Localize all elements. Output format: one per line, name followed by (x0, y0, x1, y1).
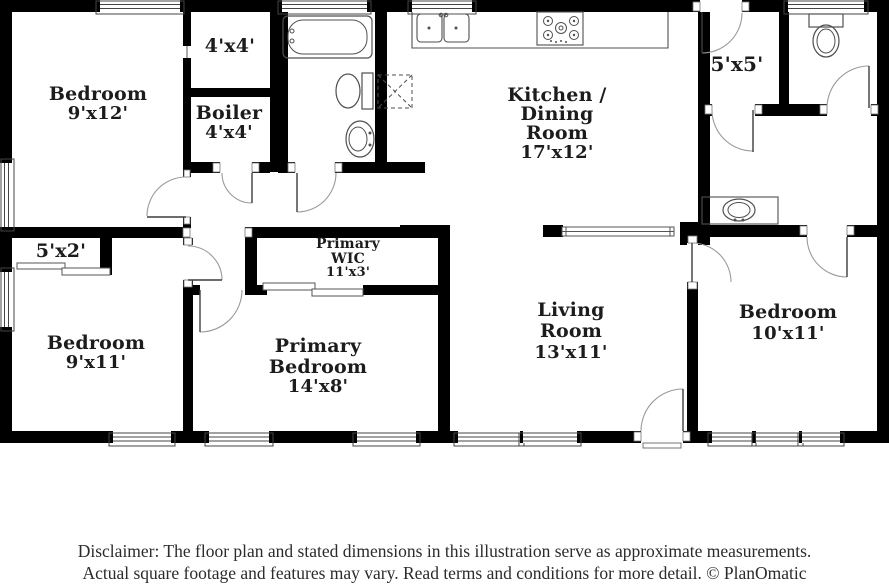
vanity-sink-icon (728, 203, 750, 218)
pedestal-sink-icon (349, 127, 367, 151)
room-dims: 9'x11' (47, 353, 145, 373)
bathroom-door-arc (297, 173, 336, 212)
room-label-bedroom-9x11: Bedroom 9'x11' (47, 333, 145, 373)
sink-tap-icon (369, 144, 372, 147)
room-label-boiler: Boiler 4'x4' (196, 103, 262, 143)
disclaimer-line-1: Disclaimer: The floor plan and stated di… (0, 540, 889, 562)
stove-burner-icon (573, 20, 575, 22)
room-label-closet-4x4: 4'x4' (205, 36, 255, 56)
stove-burner-icon (556, 23, 567, 34)
wall (779, 12, 789, 104)
front-door-arc (641, 389, 683, 431)
window (0, 163, 12, 227)
door-jamb (683, 432, 690, 441)
door-opening (295, 162, 335, 173)
stove-knob-icon (565, 41, 567, 43)
wall (698, 12, 710, 237)
sink-tap-icon (369, 132, 372, 135)
window (282, 0, 367, 12)
room-dims: 5'x5' (710, 54, 763, 74)
toilet-bowl-icon (336, 74, 360, 108)
wall (363, 285, 438, 295)
bedroom-9x11-door-arc (188, 246, 222, 280)
door-jamb (184, 280, 192, 287)
door-jamb (184, 238, 192, 245)
toilet-bowl-icon (817, 29, 835, 53)
room-name: Boiler (196, 103, 262, 123)
door-jamb (288, 163, 295, 172)
wall (375, 12, 387, 173)
door-jamb (871, 105, 878, 114)
vanity-counter-icon (702, 197, 778, 224)
disclaimer-line-2: Actual square footage and features may v… (0, 562, 889, 584)
sliding-door (312, 289, 363, 296)
door-opening (827, 104, 871, 116)
bathroom-2-door-arc (712, 110, 753, 151)
room-dims: 17'x12' (507, 143, 606, 162)
wall (270, 12, 288, 172)
wall (543, 225, 563, 237)
room-label-bedroom-9x12: Bedroom 9'x12' (49, 84, 147, 124)
sink-tap-icon (734, 219, 737, 222)
wall (438, 225, 450, 433)
door-jamb (742, 2, 749, 11)
door-jamb (847, 226, 854, 235)
door-opening (183, 245, 193, 280)
room-name: Room (534, 321, 607, 342)
toilet-room-door-arc (827, 66, 869, 108)
door-opening (183, 177, 191, 217)
room-label-primary-bedroom: Primary Bedroom 14'x8' (269, 336, 367, 398)
disclaimer: Disclaimer: The floor plan and stated di… (0, 540, 889, 584)
door-jamb (335, 163, 342, 172)
bathtub-icon (283, 16, 372, 58)
stove-burner-icon (573, 34, 575, 36)
room-name: Bedroom (49, 84, 147, 104)
kitchen-counter-icon (412, 12, 668, 48)
room-name: WIC (316, 252, 380, 267)
room-name: Primary (269, 336, 367, 357)
window (412, 0, 472, 12)
floor-plan-page: Bedroom 9'x12' 4'x4' Boiler 4'x4' Kitche… (0, 0, 889, 584)
window (788, 0, 864, 12)
bathtub-faucet-icon (290, 29, 294, 33)
sink-drain-icon (455, 27, 458, 30)
room-label-primary-wic: Primary WIC 11'x3' (316, 237, 380, 281)
room-dims: 10'x11' (739, 323, 837, 344)
door-jamb (634, 432, 641, 441)
door-jamb (820, 105, 827, 114)
room-label-kitchen-dining: Kitchen / Dining Room 17'x12' (507, 86, 606, 162)
window (0, 272, 12, 327)
bathtub-faucet-icon (290, 39, 294, 43)
door-jamb (252, 163, 259, 172)
stove-burner-icon (559, 26, 563, 30)
toilet-tank-icon (362, 73, 373, 109)
door-jamb (183, 228, 190, 237)
door-jamb (755, 105, 762, 114)
room-dims: 4'x4' (196, 123, 262, 143)
room-dims: 11'x3' (316, 266, 380, 281)
door-opening (712, 104, 755, 116)
room-name: Bedroom (47, 333, 145, 353)
sink-tap-icon (742, 219, 745, 222)
room-name: Bedroom (269, 357, 367, 378)
door-jamb (213, 163, 220, 172)
bedroom-9x12-door-arc (147, 177, 186, 216)
bathtub-icon (288, 20, 367, 54)
room-dims: 14'x8' (269, 377, 367, 398)
door-opening (220, 162, 252, 173)
room-name: Primary (316, 237, 380, 252)
sliding-door (17, 263, 65, 269)
wall (183, 88, 270, 97)
door-opening (700, 0, 742, 12)
stove-knob-icon (550, 40, 552, 42)
room-dims: 13'x11' (534, 342, 607, 363)
boiler-door-arc (222, 173, 252, 203)
pedestal-sink-icon (346, 121, 374, 157)
room-label-entry-5x5: 5'x5' (710, 54, 763, 74)
door-threshold (643, 443, 681, 448)
room-label-bedroom-10x11: Bedroom 10'x11' (739, 302, 837, 344)
room-name: Living (534, 300, 607, 321)
door-jamb (184, 217, 190, 224)
stove-knob-icon (560, 40, 562, 42)
stove-knob-icon (555, 41, 557, 43)
door-opening (641, 431, 683, 443)
wall (400, 225, 450, 237)
room-dims: 9'x12' (49, 104, 147, 124)
primary-bedroom-door-arc (200, 290, 242, 332)
room-label-closet-5x2: 5'x2' (36, 241, 86, 261)
room-dims: 5'x2' (36, 241, 86, 261)
door-jamb (705, 105, 712, 114)
room-label-living-room: Living Room 13'x11' (534, 300, 607, 363)
sliding-door (263, 283, 315, 290)
door-opening (807, 225, 847, 237)
door-jamb (184, 170, 190, 177)
wall (877, 0, 889, 443)
door-jamb (693, 2, 700, 11)
bedroom-10x11-door-arc (807, 237, 847, 277)
sliding-door (62, 268, 110, 275)
door-jamb (688, 236, 697, 243)
door-jamb (688, 282, 697, 289)
stove-burner-icon (547, 20, 549, 22)
stove-burner-icon (547, 34, 549, 36)
sink-drain-icon (428, 27, 431, 30)
door-jamb (800, 226, 807, 235)
room-dims: 4'x4' (205, 36, 255, 56)
window (100, 0, 180, 12)
room-name: Room (507, 124, 606, 143)
room-name: Bedroom (739, 302, 837, 323)
door-jamb (245, 228, 252, 237)
